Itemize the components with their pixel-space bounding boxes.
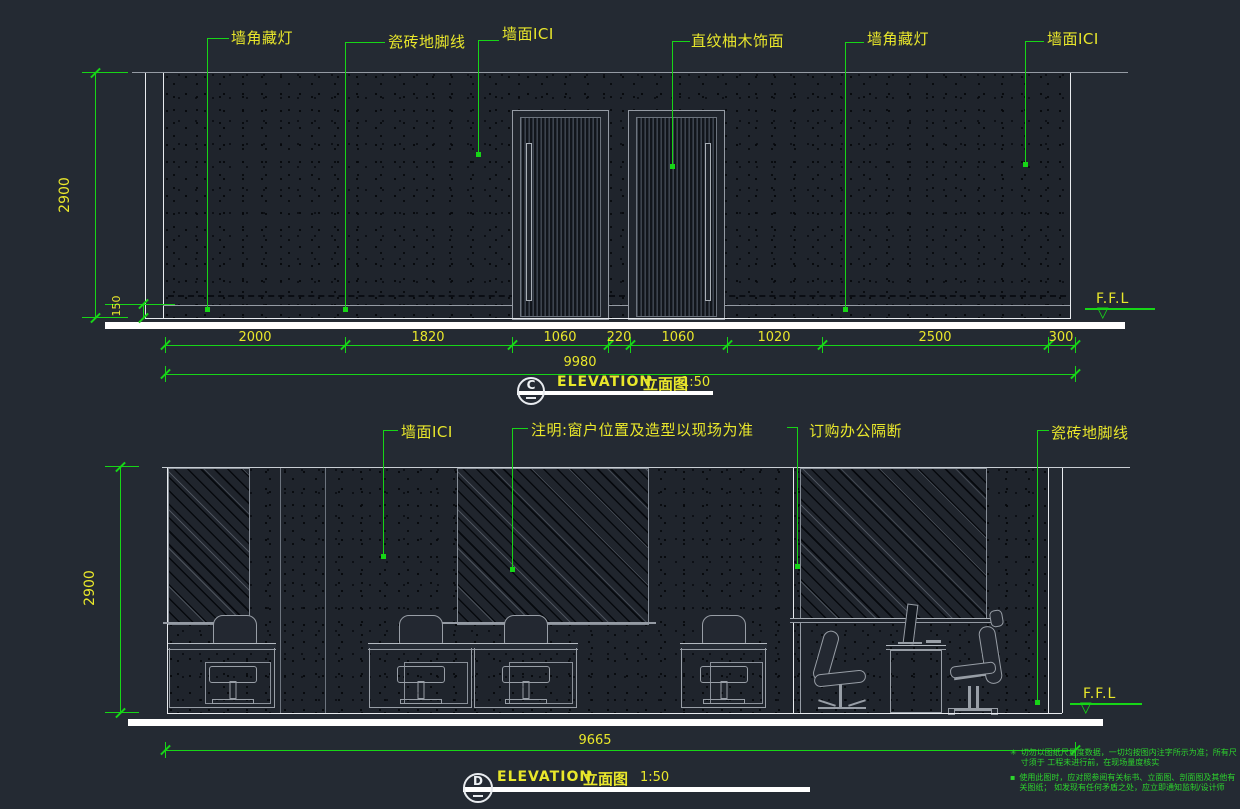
leader-line	[1037, 430, 1038, 703]
seg-dim-2500: 2500	[900, 330, 970, 345]
callout-window-note: 注明:窗户位置及造型以现场为准	[531, 419, 754, 440]
leader-line	[478, 40, 479, 155]
dim-extension-line	[82, 72, 128, 73]
height-dim-label-bottom: 2900	[70, 553, 110, 623]
note-text-2: 使用此图时，应对照参阅有关标书、立面图、剖面图及其他有关图纸； 如发现有任何矛盾…	[1019, 773, 1238, 793]
leader-dot	[381, 554, 386, 559]
cad-drawing-canvas: 墙角藏灯 瓷砖地脚线 墙面ICI 直纹柚木饰面 墙角藏灯 墙面ICI 2900 …	[0, 0, 1240, 809]
leader-line	[1025, 41, 1026, 165]
title-scale-c: 1:50	[681, 375, 710, 390]
chair-base	[505, 699, 547, 704]
executive-chair-post	[976, 686, 979, 708]
leader-dot	[1023, 162, 1028, 167]
seg-dim-1060b: 1060	[643, 330, 713, 345]
executive-chair-post	[968, 686, 971, 708]
cabinet-body	[890, 650, 942, 713]
section-symbol-dash	[526, 397, 536, 399]
section-symbol-dash	[473, 795, 483, 797]
top-floor-slab-bar	[105, 322, 1125, 329]
leader-dot	[205, 307, 210, 312]
office-desk-4	[680, 615, 767, 713]
section-letter-c: C	[519, 379, 543, 392]
callout-tile-skirting-bottom: 瓷砖地脚线	[1051, 422, 1129, 443]
chair-stem	[417, 681, 424, 699]
bottom-floor-slab-bar	[128, 719, 1103, 726]
top-left-wall-edge-inner	[163, 73, 164, 318]
title-elevation-en-c: ELEVATION	[557, 374, 652, 390]
general-notes: ✳ 切勿以图纸尺量度数据，一切均按图内注字所示为准；所有尺寸须于 工程未进行前，…	[1010, 748, 1238, 798]
leader-dot	[670, 164, 675, 169]
callout-wall-ici-bottom: 墙面ICI	[401, 421, 453, 442]
executive-chair	[942, 610, 1014, 715]
top-right-wall-edge	[1070, 73, 1071, 318]
leader-dot	[343, 307, 348, 312]
top-left-wall-edge-outer	[145, 73, 146, 318]
leader-line	[512, 428, 528, 429]
executive-chair-headrest	[989, 609, 1005, 628]
executive-chair-base	[950, 708, 996, 711]
chair-back	[504, 615, 548, 645]
chair-base	[212, 699, 254, 704]
leader-line	[672, 41, 673, 167]
ffl-triangle-top: ▽	[1097, 306, 1109, 318]
section-letter-d: D	[465, 775, 491, 788]
section-symbol-d: D	[463, 773, 493, 803]
office-desk-2	[368, 615, 473, 713]
note-bullet-1: ✳	[1010, 748, 1017, 768]
door-panel-right	[628, 110, 725, 320]
note-item-2: ▪ 使用此图时，应对照参阅有关标书、立面图、剖面图及其他有关图纸； 如发现有任何…	[1010, 773, 1238, 793]
swivel-chair-foot	[818, 699, 836, 706]
section-symbol-c: C	[517, 377, 545, 405]
height-dim-line	[95, 73, 96, 318]
callout-teak-veneer: 直纹柚木饰面	[691, 30, 784, 51]
bottom-right-wall-edge-outer	[1062, 468, 1063, 713]
height-dim-label: 2900	[45, 160, 85, 230]
chair-back	[399, 615, 443, 645]
office-desk-1	[168, 615, 276, 713]
leader-line	[1025, 41, 1044, 42]
chair-back	[213, 615, 257, 645]
wall-joint-line	[325, 468, 326, 713]
swivel-chair-foot	[848, 699, 866, 706]
bottom-right-wall-edge-inner	[1048, 468, 1049, 713]
swivel-chair-post	[839, 684, 842, 708]
total-dim-line-bottom	[165, 750, 1075, 751]
leader-line	[383, 430, 384, 557]
callout-corner-hidden-light: 墙角藏灯	[231, 27, 293, 48]
keyboard	[926, 640, 941, 643]
leader-dot	[843, 307, 848, 312]
chair-stem	[720, 681, 727, 699]
top-wall-surface	[164, 73, 1070, 318]
note-text-1: 切勿以图纸尺量度数据，一切均按图内注字所示为准；所有尺寸须于 工程未进行前，在现…	[1021, 748, 1238, 768]
leader-line	[512, 428, 513, 570]
chair-base	[703, 699, 745, 704]
leader-dot	[510, 567, 515, 572]
swivel-chair	[810, 628, 874, 716]
ffl-triangle-bottom: ▽	[1080, 701, 1092, 713]
side-cabinet	[886, 645, 946, 713]
leader-dot	[795, 564, 800, 569]
door-left-slat-veneer	[520, 117, 601, 317]
leader-line	[672, 41, 690, 42]
title-elevation-en-d: ELEVATION	[497, 769, 592, 785]
door-left-handle	[526, 143, 532, 301]
leader-line	[1037, 430, 1049, 431]
title-scale-d: 1:50	[640, 770, 669, 785]
leader-dot	[1035, 700, 1040, 705]
chair-back	[702, 615, 746, 645]
monitor-base	[898, 642, 922, 644]
door-panel-left	[512, 110, 609, 320]
height-dim-line-bottom	[120, 467, 121, 713]
leader-line	[207, 38, 229, 39]
total-dim-label-bottom: 9665	[560, 733, 630, 748]
callout-corner-hidden-light-2: 墙角藏灯	[867, 28, 929, 49]
wall-joint-line	[280, 468, 281, 713]
seg-dim-2000: 2000	[220, 330, 290, 345]
seg-dim-300: 300	[1026, 330, 1096, 345]
callout-office-partition: 订购办公隔断	[809, 420, 902, 441]
seg-dim-1820: 1820	[393, 330, 463, 345]
swivel-chair-base	[818, 707, 866, 709]
note-item-1: ✳ 切勿以图纸尺量度数据，一切均按图内注字所示为准；所有尺寸须于 工程未进行前，…	[1010, 748, 1238, 768]
note-bullet-2: ▪	[1010, 773, 1015, 793]
door-right-handle	[705, 143, 711, 301]
window-glass-3	[800, 468, 987, 620]
leader-line	[845, 42, 864, 43]
leader-line	[345, 42, 385, 43]
leader-line	[207, 38, 208, 310]
office-partition-line-left	[793, 468, 794, 713]
top-floor-line	[145, 318, 1071, 319]
segment-dim-line	[165, 345, 1075, 346]
office-desk-3	[473, 615, 578, 713]
chair-stem	[229, 681, 236, 699]
title-elevation-cn-d: 立面图	[583, 768, 628, 789]
skirting-dim-label: 150	[102, 288, 130, 324]
window-glass-1	[168, 468, 250, 625]
callout-tile-skirting: 瓷砖地脚线	[388, 31, 466, 52]
leader-line	[845, 42, 846, 310]
window-glass-2	[457, 468, 649, 625]
bottom-floor-line	[167, 713, 1062, 714]
callout-wall-ici-2: 墙面ICI	[1047, 28, 1099, 49]
skirting-line	[163, 305, 1070, 306]
chair-base	[400, 699, 442, 704]
leader-line	[478, 40, 499, 41]
leader-line	[383, 430, 398, 431]
chair-stem	[522, 681, 529, 699]
leader-line	[797, 427, 798, 567]
ffl-line-top	[1085, 308, 1155, 310]
title-underline-d	[463, 787, 810, 792]
skirting-hidden-light-dashed-line	[168, 295, 1066, 297]
seg-dim-1020: 1020	[739, 330, 809, 345]
leader-line	[345, 42, 346, 310]
callout-wall-ici: 墙面ICI	[502, 23, 554, 44]
total-dim-label: 9980	[545, 355, 615, 370]
leader-dot	[476, 152, 481, 157]
